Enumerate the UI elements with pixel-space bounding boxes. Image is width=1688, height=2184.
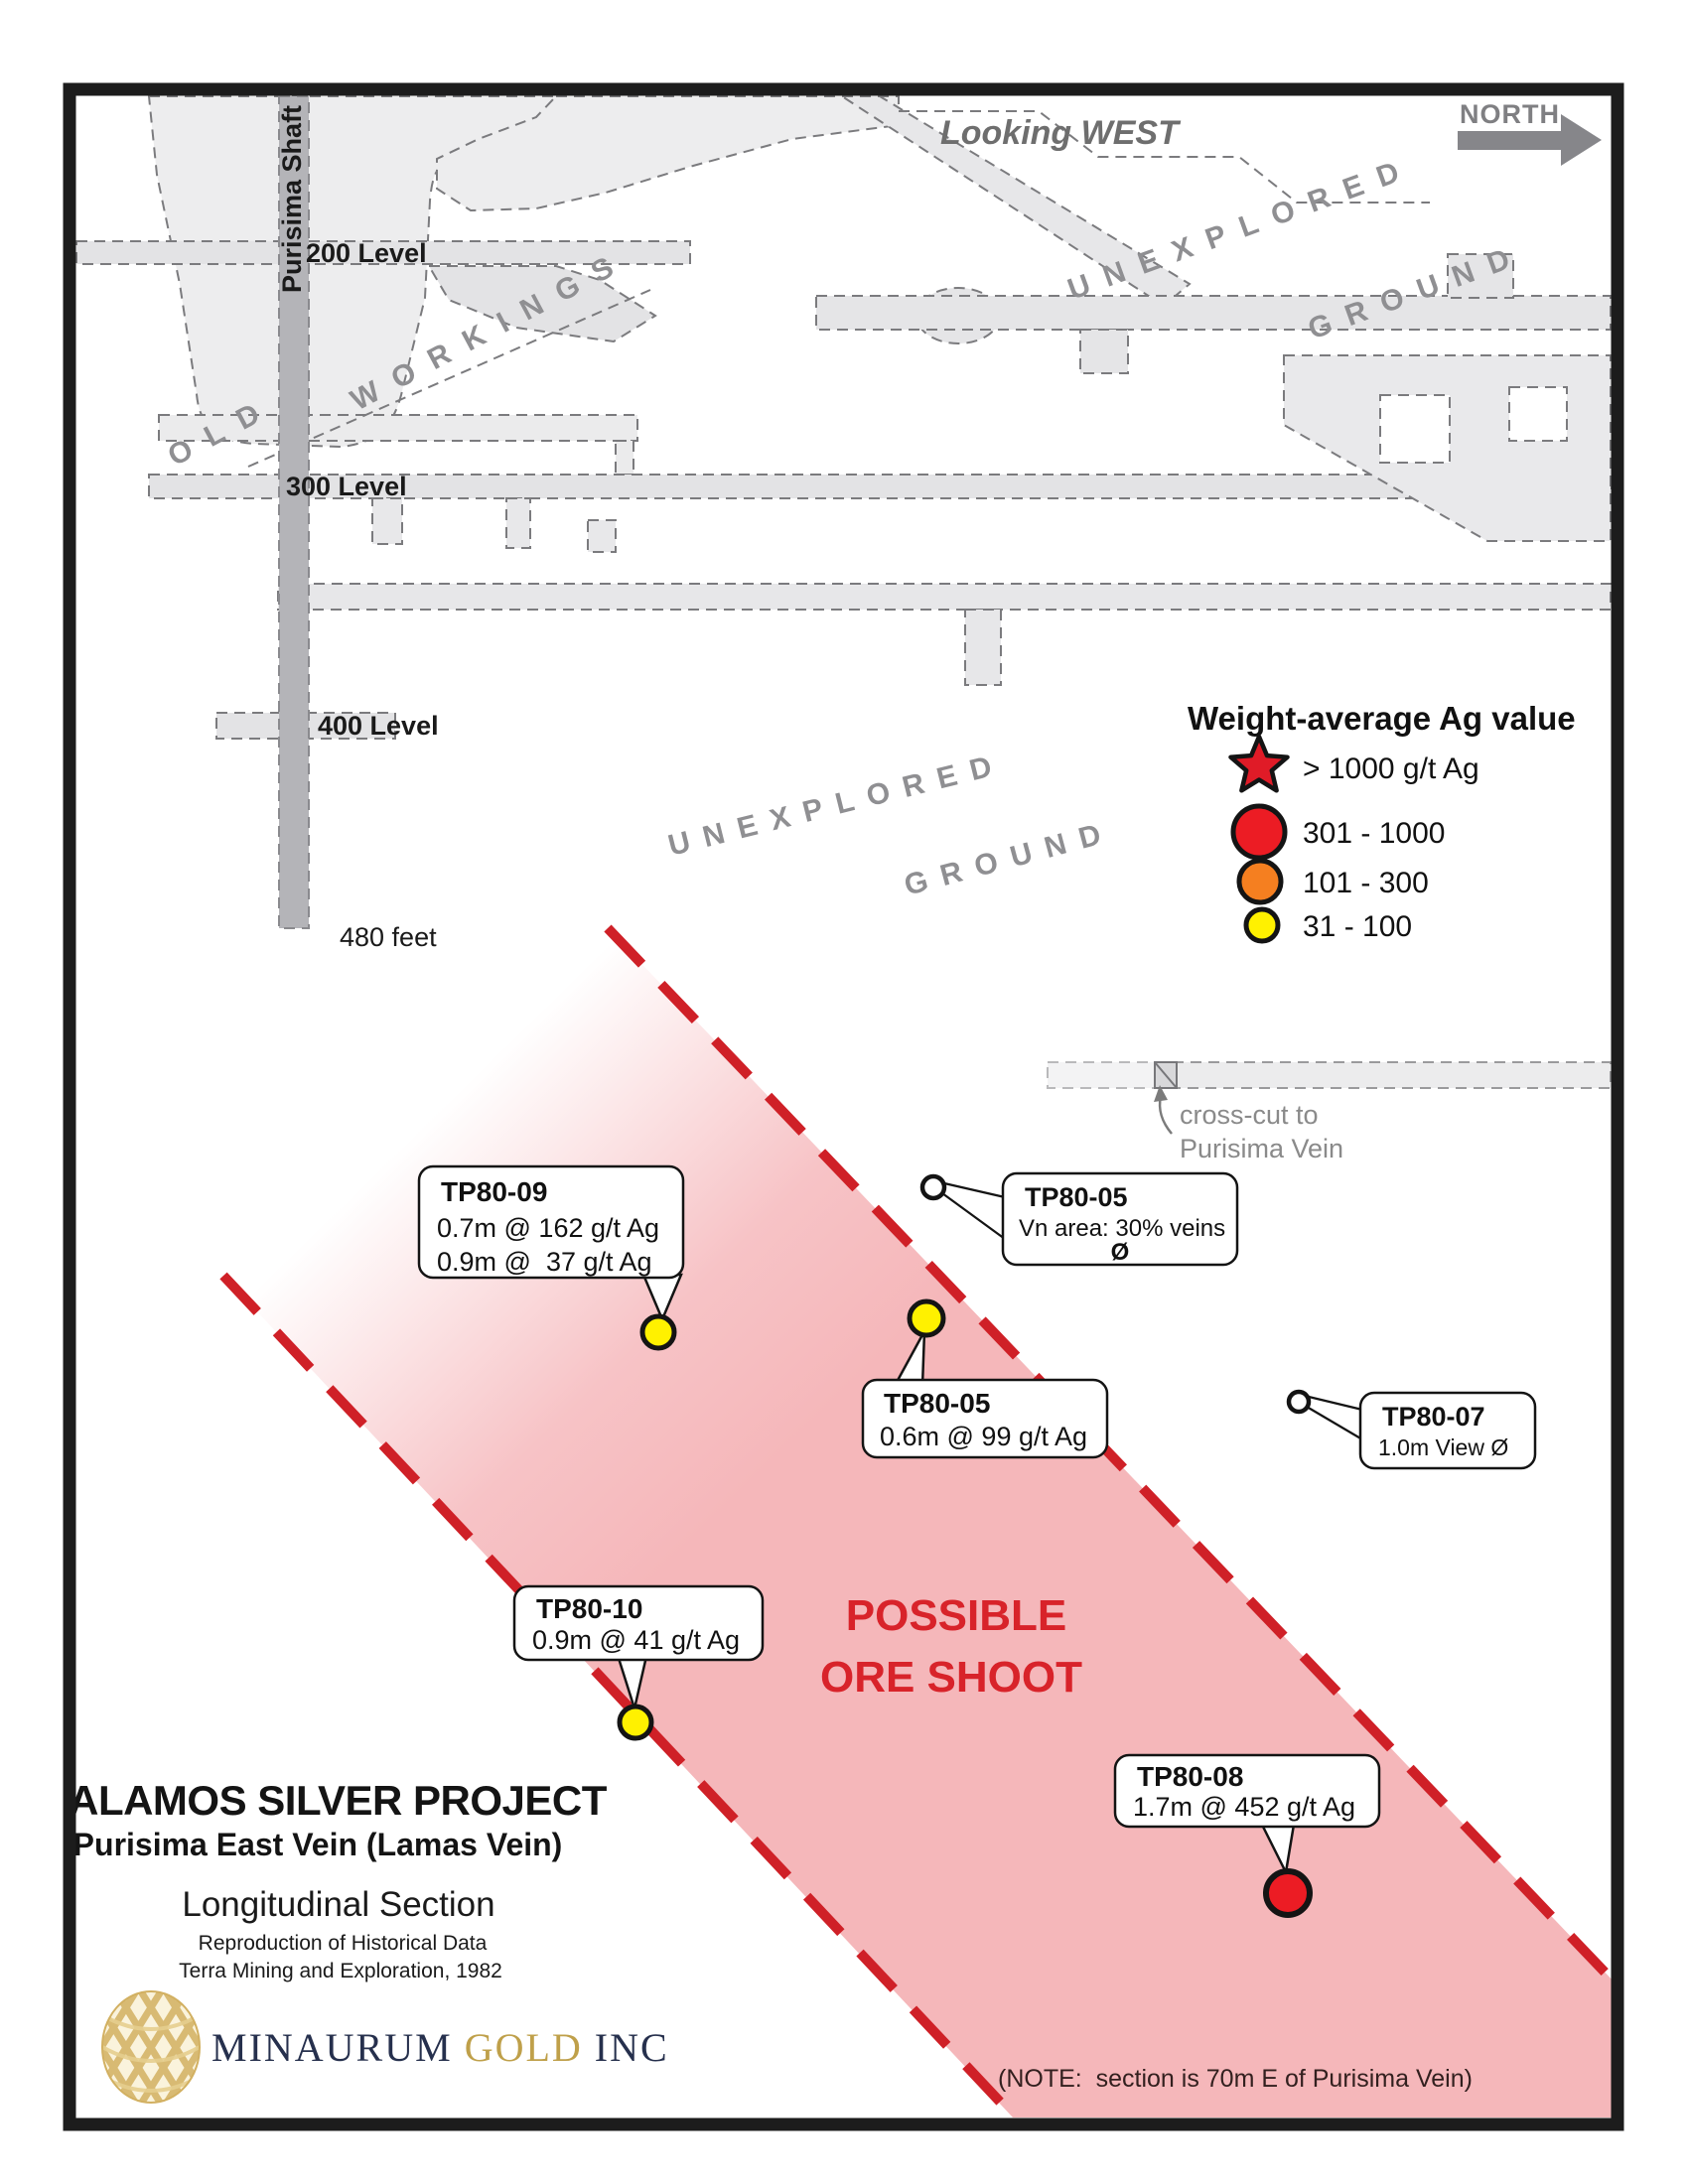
crosscut-arrow [1160, 1096, 1172, 1134]
vein-subtitle: Purisima East Vein (Lamas Vein) [73, 1827, 563, 1862]
shaft-label: Purisima Shaft [277, 105, 307, 293]
winze [588, 520, 616, 552]
section-note: (NOTE: section is 70m E of Purisima Vein… [998, 2065, 1473, 2093]
logo-word-gold: GOLD [465, 2025, 583, 2070]
marker-tp80-05-yellow-dot [910, 1301, 943, 1335]
callout-leader-line [942, 1193, 1005, 1239]
logo-wordmark: MINAURUM GOLD INC [211, 2025, 669, 2070]
callout-hole-id: TP80-10 [536, 1593, 642, 1624]
level-400-label: 400 Level [318, 711, 439, 741]
callout-assay-line: 0.9m @ 41 g/t Ag [532, 1625, 740, 1655]
crosscut-label-line2: Purisima Vein [1180, 1134, 1343, 1163]
callout-tp80-07: TP80-07 1.0m View Ø [1360, 1393, 1535, 1468]
raise [616, 441, 633, 475]
level-300-label: 300 Level [286, 472, 407, 501]
north-arrow-head-icon [1561, 114, 1602, 166]
callout-assay-line: 1.7m @ 452 g/t Ag [1133, 1792, 1355, 1822]
shaft-depth-label: 480 feet [340, 922, 437, 952]
marker-tp80-10-yellow-dot [620, 1706, 651, 1738]
winze [506, 498, 530, 548]
source-line-1: Reproduction of Historical Data [199, 1932, 488, 1955]
unexplored-upper-label-1: UNEXPLORED [1063, 151, 1418, 307]
longitudinal-section-figure: Looking WEST Purisima Shaft 200 Level 30… [0, 0, 1688, 2184]
callout-leader-line [1307, 1407, 1362, 1439]
north-arrow-shaft [1458, 131, 1561, 150]
project-title: ALAMOS SILVER PROJECT [69, 1777, 608, 1824]
legend-label-2: 101 - 300 [1303, 867, 1429, 899]
callout-leader-line [944, 1183, 1005, 1197]
callout-assay-line: Vn area: 30% veins [1019, 1215, 1225, 1242]
callout-assay-line: 0.7m @ 162 g/t Ag [437, 1213, 659, 1243]
crosscut-drift: cross-cut to Purisima Vein [1048, 1062, 1611, 1163]
legend-large-circle-icon [1233, 806, 1285, 858]
legend-label-0: > 1000 g/t Ag [1303, 752, 1479, 785]
legend-title: Weight-average Ag value [1188, 700, 1576, 737]
callout-tp80-08: TP80-08 1.7m @ 452 g/t Ag [1115, 1755, 1379, 1827]
callout-hole-id: TP80-05 [884, 1388, 990, 1419]
marker-tp80-09-yellow-dot [642, 1316, 674, 1348]
callout-hole-id: TP80-09 [441, 1176, 547, 1207]
callout-hole-id: TP80-08 [1137, 1761, 1243, 1792]
looking-west-label: Looking WEST [940, 114, 1182, 152]
callout-tp80-05-upper: TP80-05 Vn area: 30% veins Ø [1003, 1173, 1237, 1266]
ore-shoot-label-line2: ORE SHOOT [820, 1653, 1082, 1702]
source-line-2: Terra Mining and Exploration, 1982 [179, 1960, 502, 1982]
callout-assay-line: 0.9m @ 37 g/t Ag [437, 1247, 652, 1277]
legend-label-3: 31 - 100 [1303, 910, 1412, 943]
marker-tp80-08-red-dot [1266, 1871, 1310, 1915]
minaurum-logo: MINAURUM GOLD INC [60, 1971, 669, 2134]
winze [965, 610, 1001, 685]
callout-null-symbol: Ø [1111, 1239, 1130, 1266]
unexplored-mid-label-2: GROUND [901, 815, 1117, 902]
legend: Weight-average Ag value > 1000 g/t Ag 30… [1188, 700, 1576, 943]
section-type-label: Longitudinal Section [182, 1885, 494, 1924]
marker-tp80-07-open-circle [1289, 1392, 1309, 1412]
callout-tp80-09: TP80-09 0.7m @ 162 g/t Ag 0.9m @ 37 g/t … [419, 1166, 683, 1278]
callout-assay-line: 0.6m @ 99 g/t Ag [880, 1422, 1087, 1451]
room [1080, 330, 1128, 373]
callout-hole-id: TP80-07 [1382, 1402, 1485, 1432]
unexplored-mid-label-1: UNEXPLORED [665, 747, 1009, 862]
callout-tp80-10: TP80-10 0.9m @ 41 g/t Ag [514, 1586, 763, 1660]
winze [372, 498, 402, 544]
section-canvas: Looking WEST Purisima Shaft 200 Level 30… [0, 0, 1688, 2184]
crosscut-drift-bar-left [1048, 1062, 1155, 1088]
pillar [1509, 387, 1567, 441]
legend-small-circle-icon [1246, 909, 1278, 941]
legend-label-1: 301 - 1000 [1303, 817, 1445, 850]
logo-word-minaurum: MINAURUM [211, 2025, 465, 2070]
crosscut-label-line1: cross-cut to [1180, 1100, 1319, 1130]
logo-word-inc: INC [583, 2025, 669, 2070]
callout-leader-line [1309, 1397, 1362, 1410]
callout-assay-line: 1.0m View Ø [1378, 1434, 1508, 1460]
ore-shoot-label-line1: POSSIBLE [846, 1591, 1067, 1640]
level-200-label: 200 Level [306, 238, 427, 268]
callout-hole-id: TP80-05 [1025, 1182, 1128, 1212]
north-arrow: NORTH [1458, 99, 1602, 166]
pillar [1380, 395, 1450, 463]
title-block: ALAMOS SILVER PROJECT Purisima East Vein… [69, 1777, 608, 1982]
mid-drift [278, 584, 1611, 610]
marker-tp80-05-open-circle [922, 1176, 944, 1198]
legend-medium-circle-icon [1239, 861, 1281, 902]
legend-star-icon [1231, 737, 1288, 790]
north-label: NORTH [1460, 99, 1560, 129]
callout-tp80-05-lower: TP80-05 0.6m @ 99 g/t Ag [863, 1380, 1107, 1457]
upper-right-drift [816, 296, 1611, 330]
